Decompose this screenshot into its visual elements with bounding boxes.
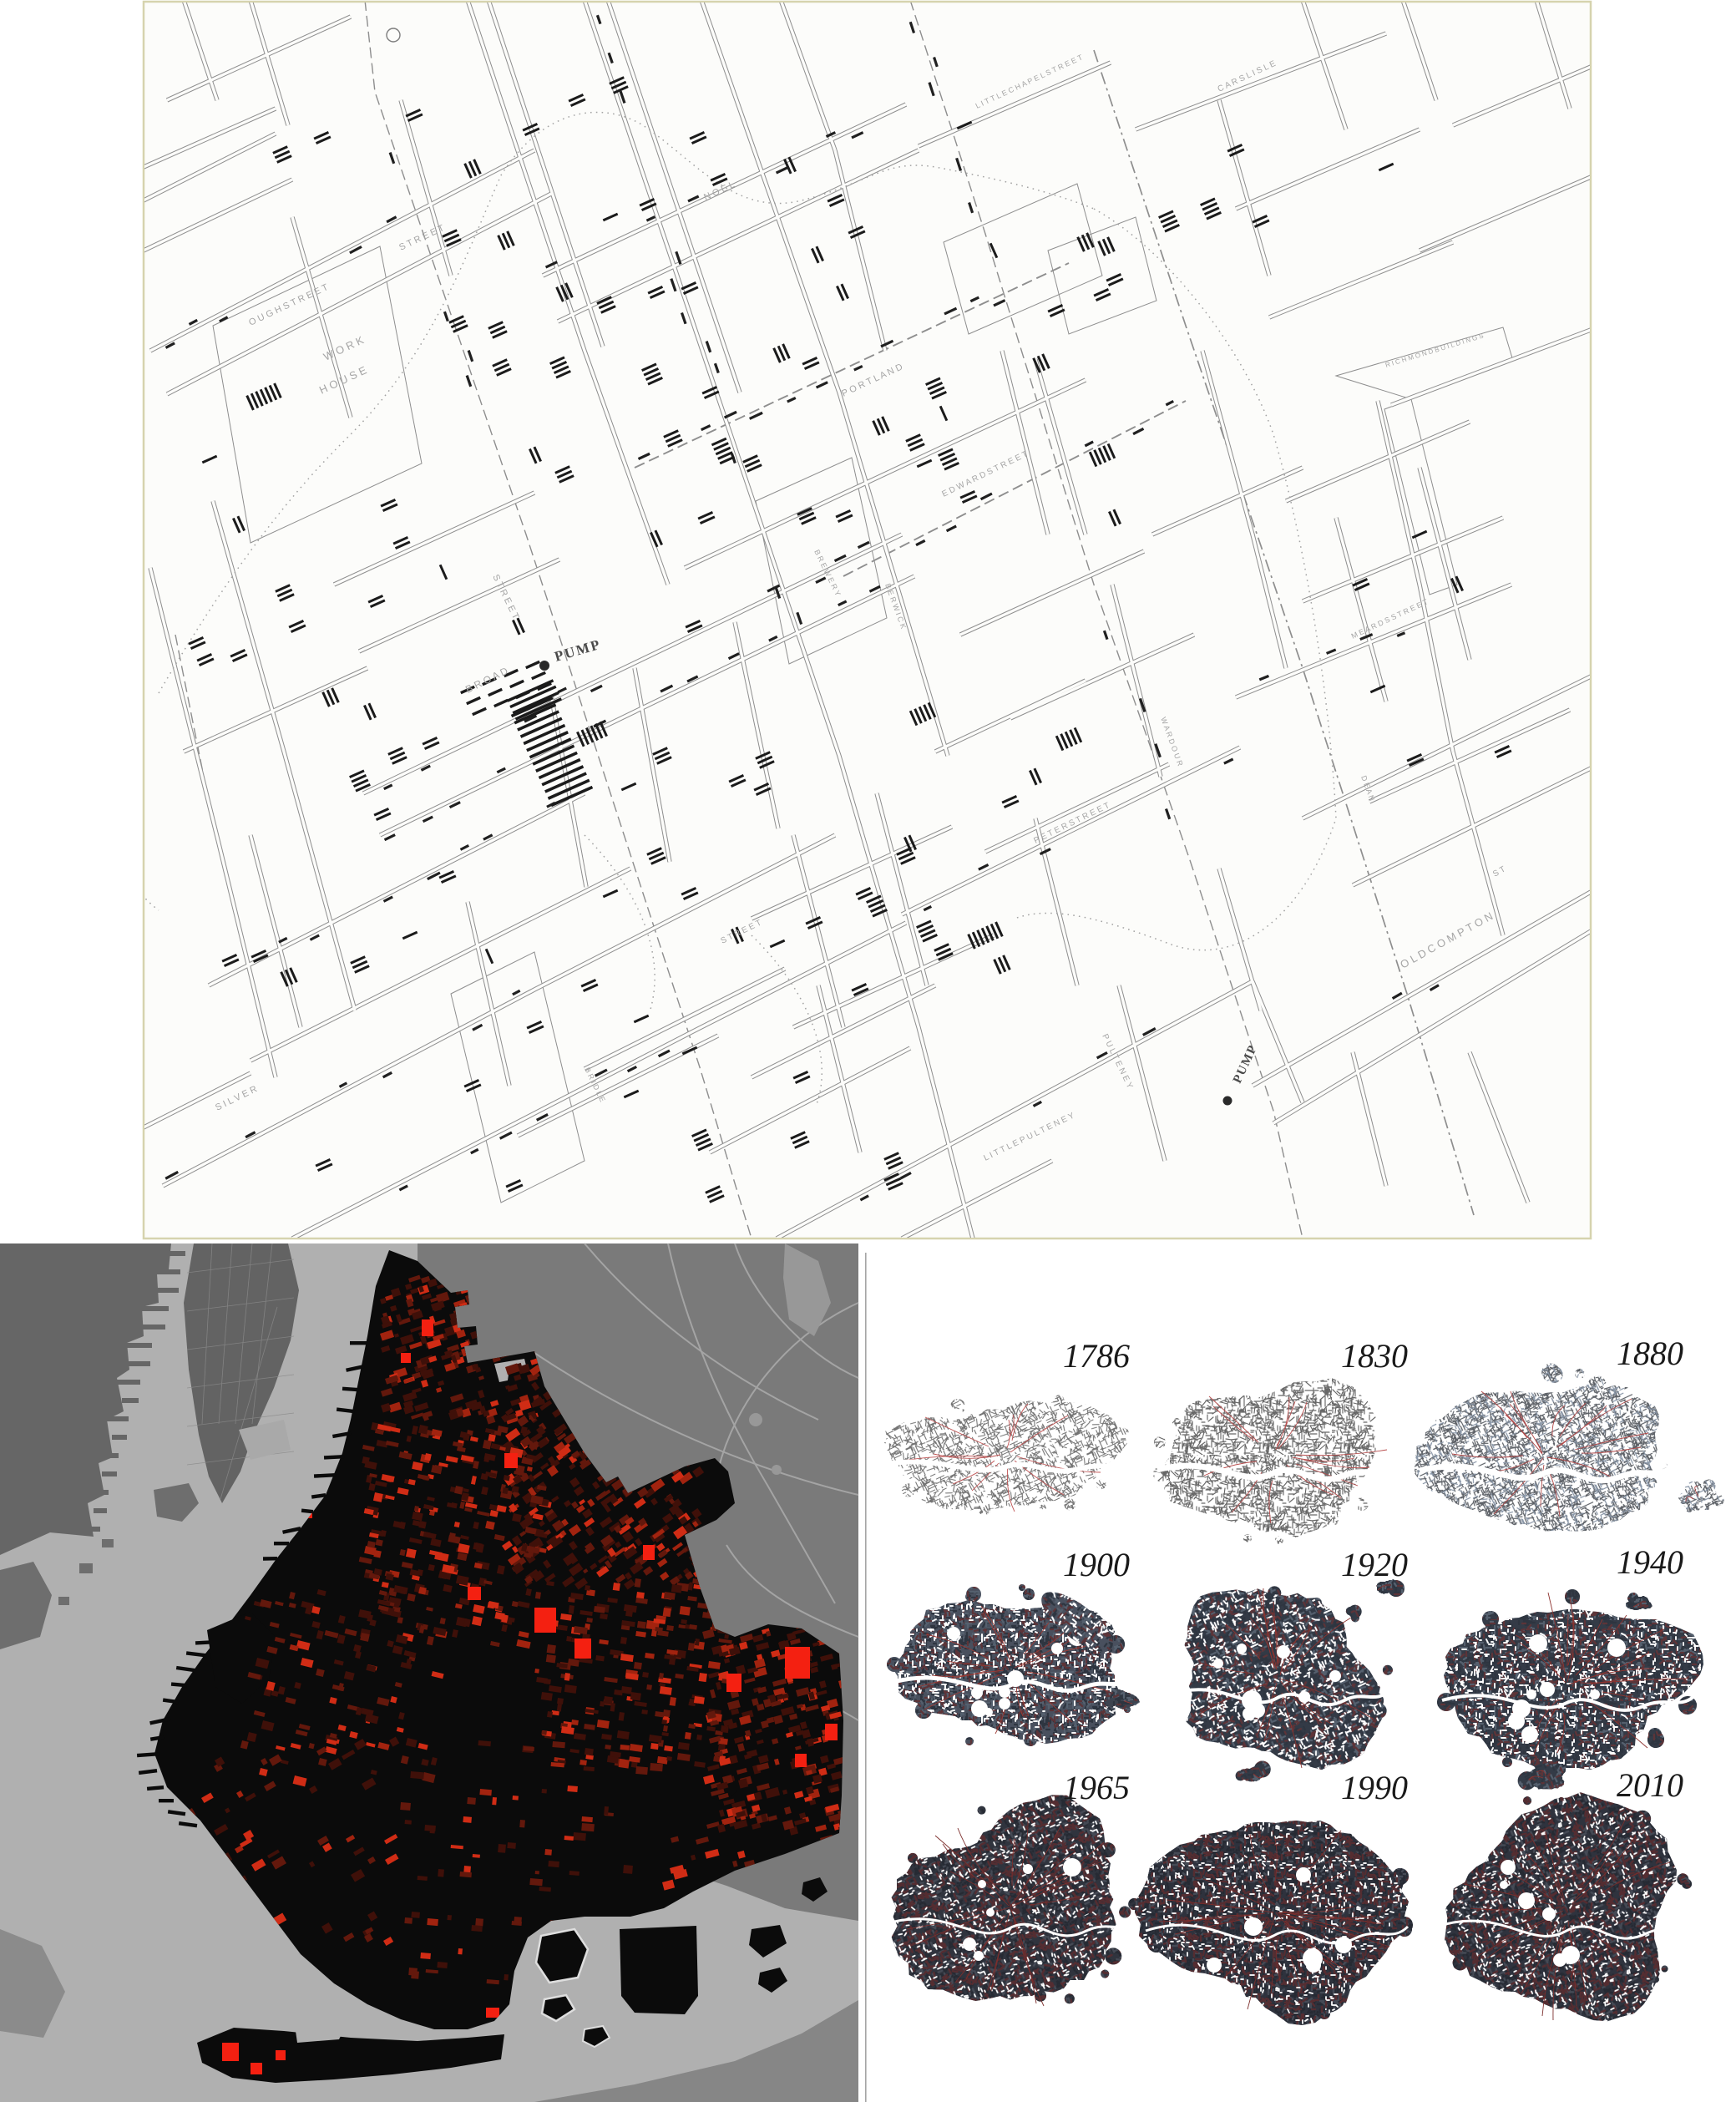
svg-text:1830: 1830 <box>1341 1337 1408 1375</box>
svg-text:1900: 1900 <box>1063 1546 1130 1583</box>
svg-text:1965: 1965 <box>1063 1769 1130 1806</box>
svg-text:1880: 1880 <box>1617 1335 1683 1372</box>
svg-text:1990: 1990 <box>1341 1769 1408 1806</box>
svg-text:2010: 2010 <box>1617 1766 1683 1804</box>
svg-text:1920: 1920 <box>1341 1546 1408 1583</box>
svg-text:1940: 1940 <box>1617 1543 1683 1581</box>
svg-text:1786: 1786 <box>1063 1337 1130 1375</box>
